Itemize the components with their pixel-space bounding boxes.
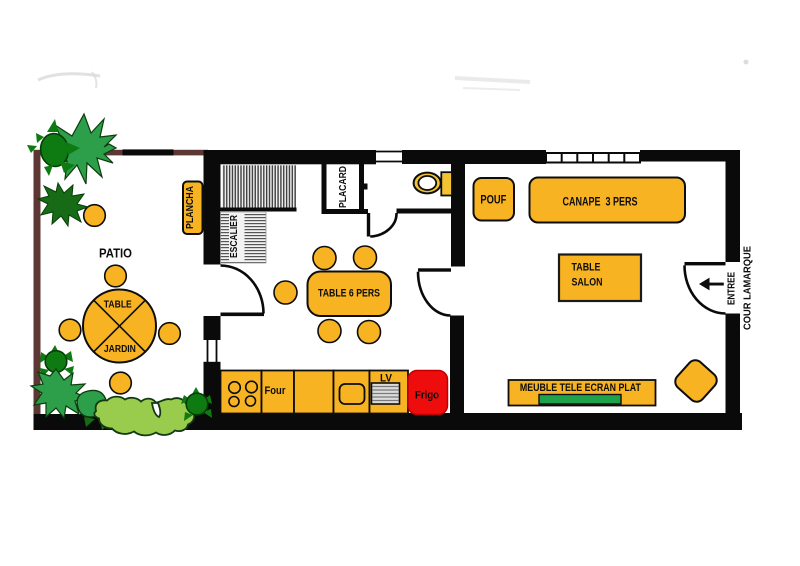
- svg-text:PLACARD: PLACARD: [338, 166, 349, 208]
- svg-text:MEUBLE TELE ECRAN PLAT: MEUBLE TELE ECRAN PLAT: [520, 382, 641, 394]
- svg-text:SALON: SALON: [572, 277, 603, 289]
- svg-text:JARDIN: JARDIN: [104, 344, 136, 355]
- svg-text:TABLE 6 PERS: TABLE 6 PERS: [318, 287, 380, 299]
- svg-text:TABLE: TABLE: [572, 261, 601, 273]
- svg-text:Frigo: Frigo: [415, 390, 439, 402]
- svg-text:TABLE: TABLE: [104, 300, 132, 311]
- svg-text:PATIO: PATIO: [99, 246, 132, 261]
- svg-text:ESCALIER: ESCALIER: [229, 214, 240, 258]
- svg-text:COUR LAMARQUE: COUR LAMARQUE: [742, 246, 754, 330]
- svg-text:ENTREE: ENTREE: [726, 272, 738, 305]
- svg-text:POUF: POUF: [480, 194, 506, 206]
- svg-text:PLANCHA: PLANCHA: [185, 186, 196, 229]
- svg-text:Four: Four: [265, 385, 286, 397]
- svg-text:CANAPE 3 PERS: CANAPE 3 PERS: [563, 196, 638, 209]
